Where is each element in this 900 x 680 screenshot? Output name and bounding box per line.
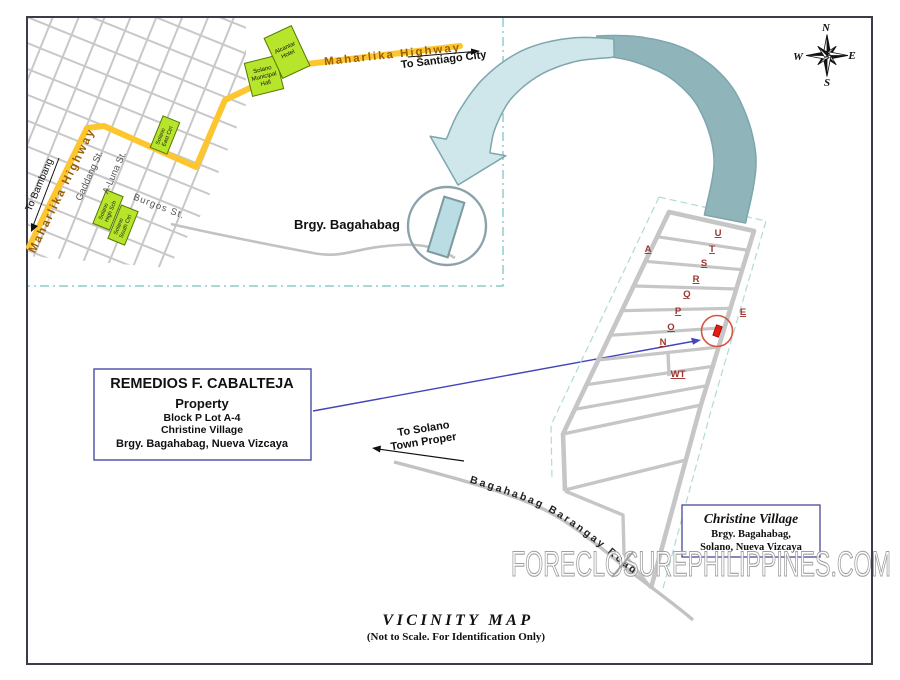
svg-text:Brgy. Bagahabag, Nueva Vizcaya: Brgy. Bagahabag, Nueva Vizcaya: [116, 438, 289, 450]
svg-text:S: S: [824, 77, 830, 89]
svg-text:U: U: [715, 228, 722, 239]
svg-text:P: P: [675, 306, 682, 317]
svg-text:T: T: [709, 244, 715, 255]
svg-text:VICINITY MAP: VICINITY MAP: [382, 612, 533, 629]
svg-text:Brgy. Bagahabag: Brgy. Bagahabag: [294, 217, 400, 232]
svg-text:N: N: [660, 337, 667, 348]
svg-text:E: E: [740, 307, 746, 318]
svg-text:Q: Q: [683, 289, 690, 300]
svg-text:N: N: [821, 22, 831, 34]
svg-text:O: O: [667, 322, 674, 333]
svg-text:WT: WT: [671, 369, 686, 380]
svg-text:Property: Property: [175, 396, 229, 411]
svg-text:S: S: [701, 258, 707, 269]
svg-text:FORECLOSUREPHILIPPINES.COM: FORECLOSUREPHILIPPINES.COM: [511, 545, 891, 584]
svg-text:Brgy. Bagahabag,: Brgy. Bagahabag,: [711, 529, 791, 540]
svg-text:(Not to Scale. For Identificat: (Not to Scale. For Identification Only): [367, 631, 546, 643]
svg-text:R: R: [693, 274, 700, 285]
svg-text:Block P Lot A-4: Block P Lot A-4: [163, 412, 240, 424]
svg-text:E: E: [847, 50, 855, 62]
svg-text:W: W: [793, 51, 804, 63]
svg-text:Christine Village: Christine Village: [704, 511, 798, 526]
svg-text:A: A: [645, 244, 652, 255]
svg-text:Christine Village: Christine Village: [161, 424, 243, 436]
svg-text:REMEDIOS F. CABALTEJA: REMEDIOS F. CABALTEJA: [110, 376, 294, 392]
